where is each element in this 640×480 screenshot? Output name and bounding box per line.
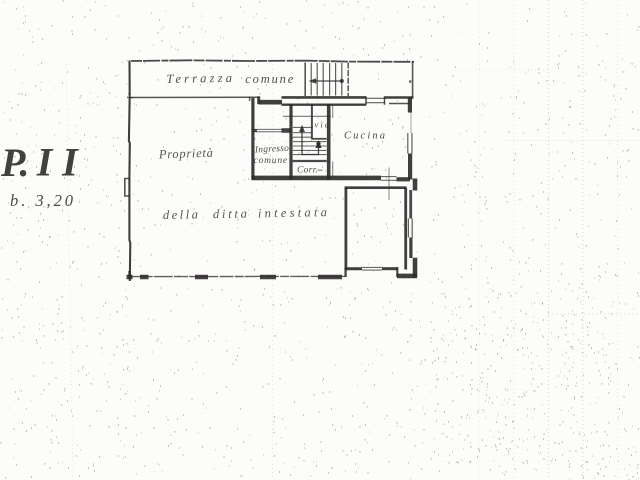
- svg-text:Ingresso: Ingresso: [254, 144, 290, 156]
- svg-text:Corr.: Corr.: [297, 165, 318, 175]
- svg-text:.: .: [20, 140, 30, 185]
- svg-text:comune: comune: [254, 156, 288, 166]
- svg-text:Cucina: Cucina: [344, 131, 385, 142]
- svg-text:Proprietà: Proprietà: [158, 146, 213, 162]
- svg-text:vìa: vìa: [315, 120, 330, 130]
